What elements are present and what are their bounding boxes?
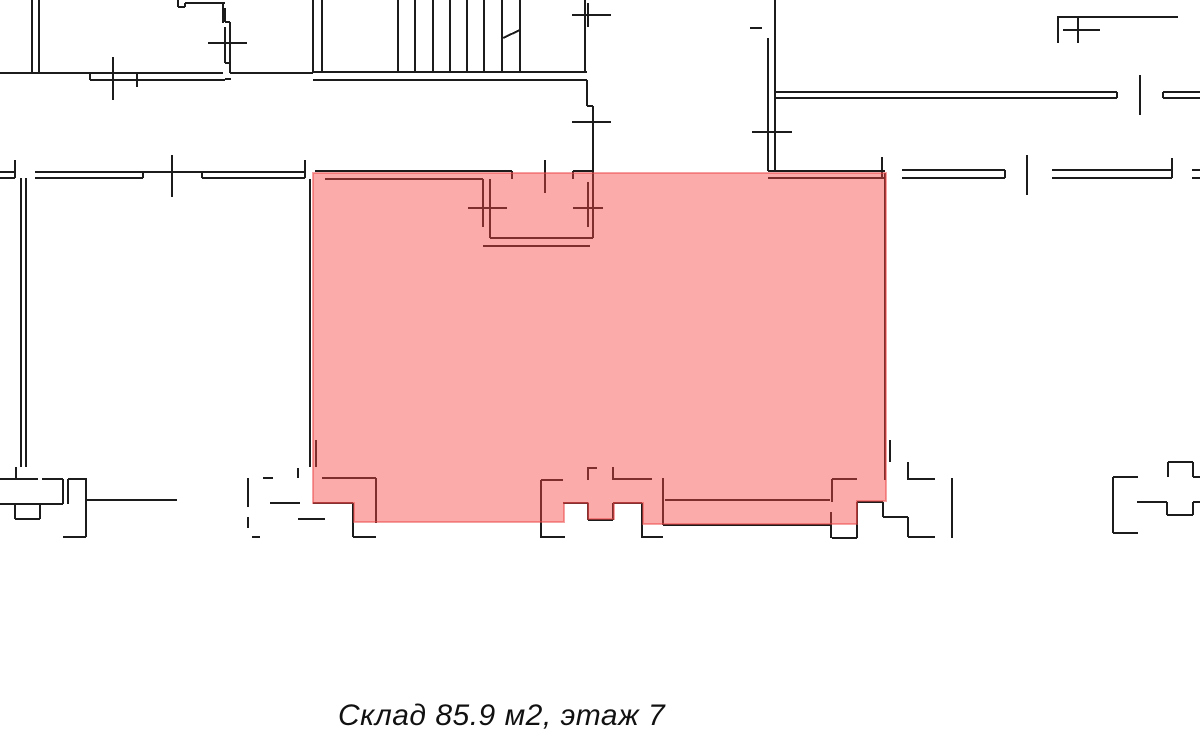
warehouse-highlight[interactable] bbox=[313, 173, 886, 524]
floor-plan-svg bbox=[0, 0, 1200, 745]
floor-plan-page: Склад 85.9 м2, этаж 7 bbox=[0, 0, 1200, 745]
plan-caption: Склад 85.9 м2, этаж 7 bbox=[338, 699, 665, 733]
